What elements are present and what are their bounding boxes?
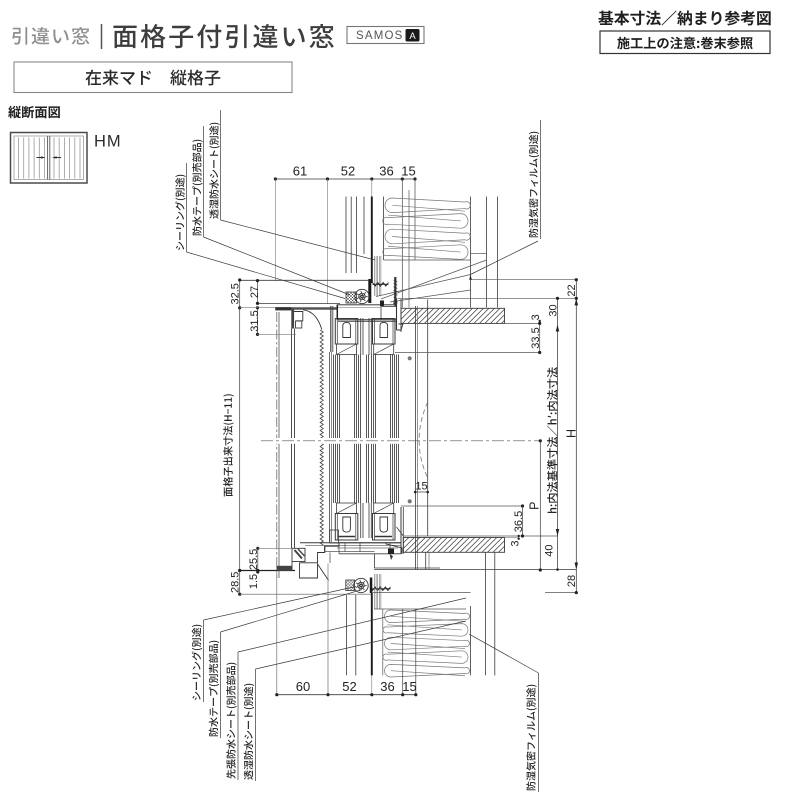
svg-text:22: 22 [566,284,578,296]
svg-text:15: 15 [401,164,415,179]
svg-text:40: 40 [544,544,556,556]
svg-text:32.5: 32.5 [230,283,242,304]
svg-text:52: 52 [342,679,356,694]
svg-text:SAMOS: SAMOS [356,30,404,42]
svg-text:A: A [409,31,416,42]
svg-text:31.5: 31.5 [249,310,261,331]
svg-text:30: 30 [548,304,560,316]
svg-text:25.5: 25.5 [248,549,260,570]
svg-text:52: 52 [341,164,355,179]
svg-text:60: 60 [296,679,310,694]
svg-text:27: 27 [249,286,261,298]
svg-text:61: 61 [293,164,307,179]
svg-text:H: H [565,429,579,438]
svg-text:28: 28 [566,575,578,587]
svg-text:36.5: 36.5 [513,511,525,532]
svg-text:15: 15 [415,481,427,493]
svg-text:36: 36 [380,679,394,694]
svg-text:3: 3 [510,540,522,546]
svg-text:3: 3 [530,314,542,320]
svg-text:HM: HM [94,133,122,151]
svg-text:15: 15 [402,679,416,694]
svg-text:1.5: 1.5 [248,574,260,589]
svg-text:33.5: 33.5 [530,327,542,348]
svg-text:36: 36 [379,164,393,179]
svg-text:28.5: 28.5 [230,572,242,593]
svg-text:P: P [528,502,542,510]
